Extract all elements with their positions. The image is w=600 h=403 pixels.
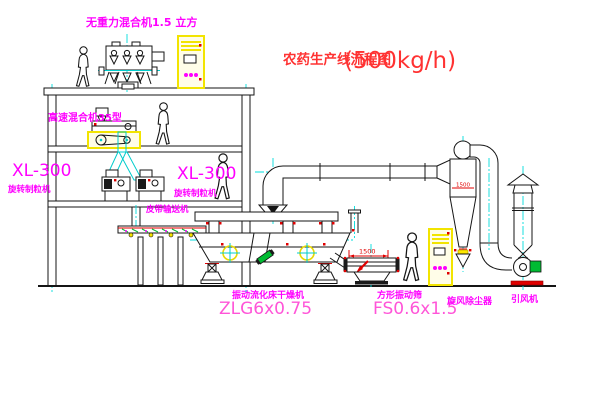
page-title-capacity: (500kg/h) — [344, 48, 456, 74]
granulator-left — [100, 170, 132, 201]
label-granulator-left: 旋转制粒机 — [7, 184, 51, 195]
label-screen-dim: 1500 — [359, 248, 376, 256]
label-cyclone-dim: 1500 — [456, 183, 470, 189]
cabinet-indicator-icon — [433, 266, 447, 270]
hood-connectors — [206, 221, 335, 233]
dryer-support-left — [201, 264, 224, 284]
label-dryer-model: ZLG6x0.75 — [219, 299, 312, 319]
dryer-hood — [195, 212, 338, 221]
fluid-bed-dryer — [190, 206, 361, 284]
label-granulator-center: 旋转制粒机 — [173, 188, 217, 199]
label-xl300-center: XL-300 — [177, 164, 236, 184]
person-figure — [76, 47, 88, 87]
label-high-speed-mixer: 高速混合机35型 — [48, 111, 122, 124]
mixer-motor — [152, 52, 164, 61]
cabinet-indicator-icon — [184, 73, 198, 77]
label-gravity-mixer: 无重力混合机1.5 立方 — [85, 15, 197, 29]
pesticide-line-flow-diagram: 无重力混合机1.5 立方 农药生产线流程图 (500kg/h) 高速混合机35型… — [0, 0, 600, 403]
induced-draft-fan — [511, 258, 543, 286]
control-cabinet-right — [429, 229, 452, 285]
control-cabinet-top — [178, 36, 204, 88]
fan-motor — [530, 261, 541, 272]
label-xl300-left: XL-300 — [12, 161, 71, 181]
gravity-free-mixer — [98, 34, 164, 92]
belt-conveyor — [118, 226, 206, 285]
diagram-canvas: 无重力混合机1.5 立方 农药生产线流程图 (500kg/h) 高速混合机35型… — [0, 0, 600, 403]
person-figure — [404, 233, 419, 280]
dryer-support-right — [314, 264, 337, 284]
person-figure — [156, 103, 169, 144]
label-cyclone: 旋风除尘器 — [446, 295, 493, 307]
label-belt-conveyor: 皮带输送机 — [145, 204, 189, 215]
conveyor-legs — [138, 237, 183, 285]
label-fan: 引风机 — [511, 293, 538, 305]
label-screen-model: FS0.6x1.5 — [373, 299, 457, 319]
